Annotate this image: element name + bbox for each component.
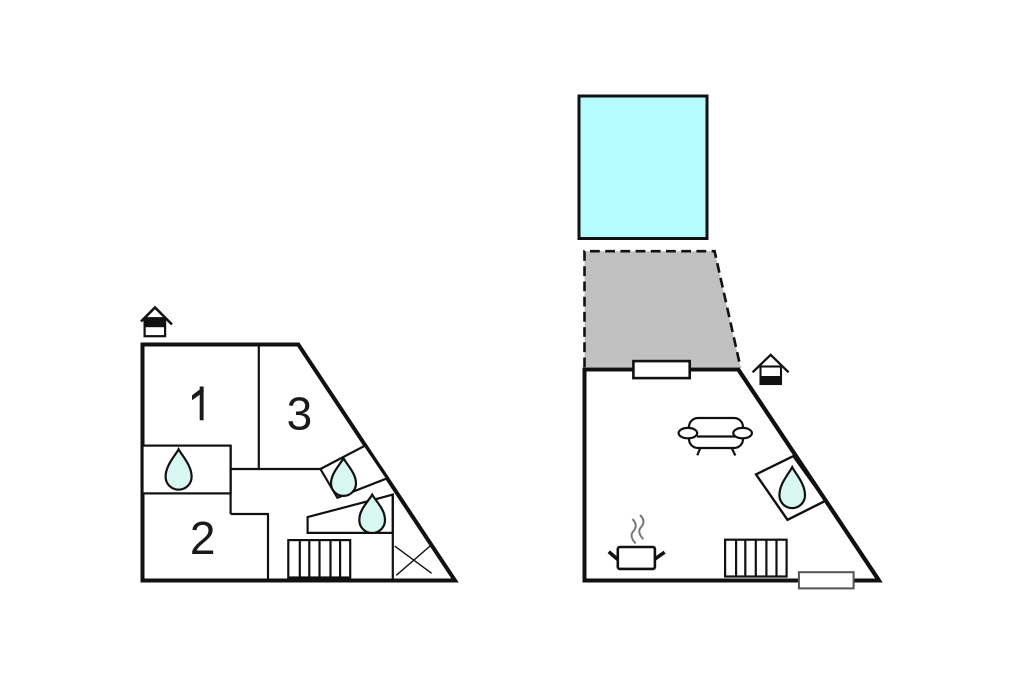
svg-text:2: 2 [190,512,216,564]
svg-text:3: 3 [287,387,313,439]
